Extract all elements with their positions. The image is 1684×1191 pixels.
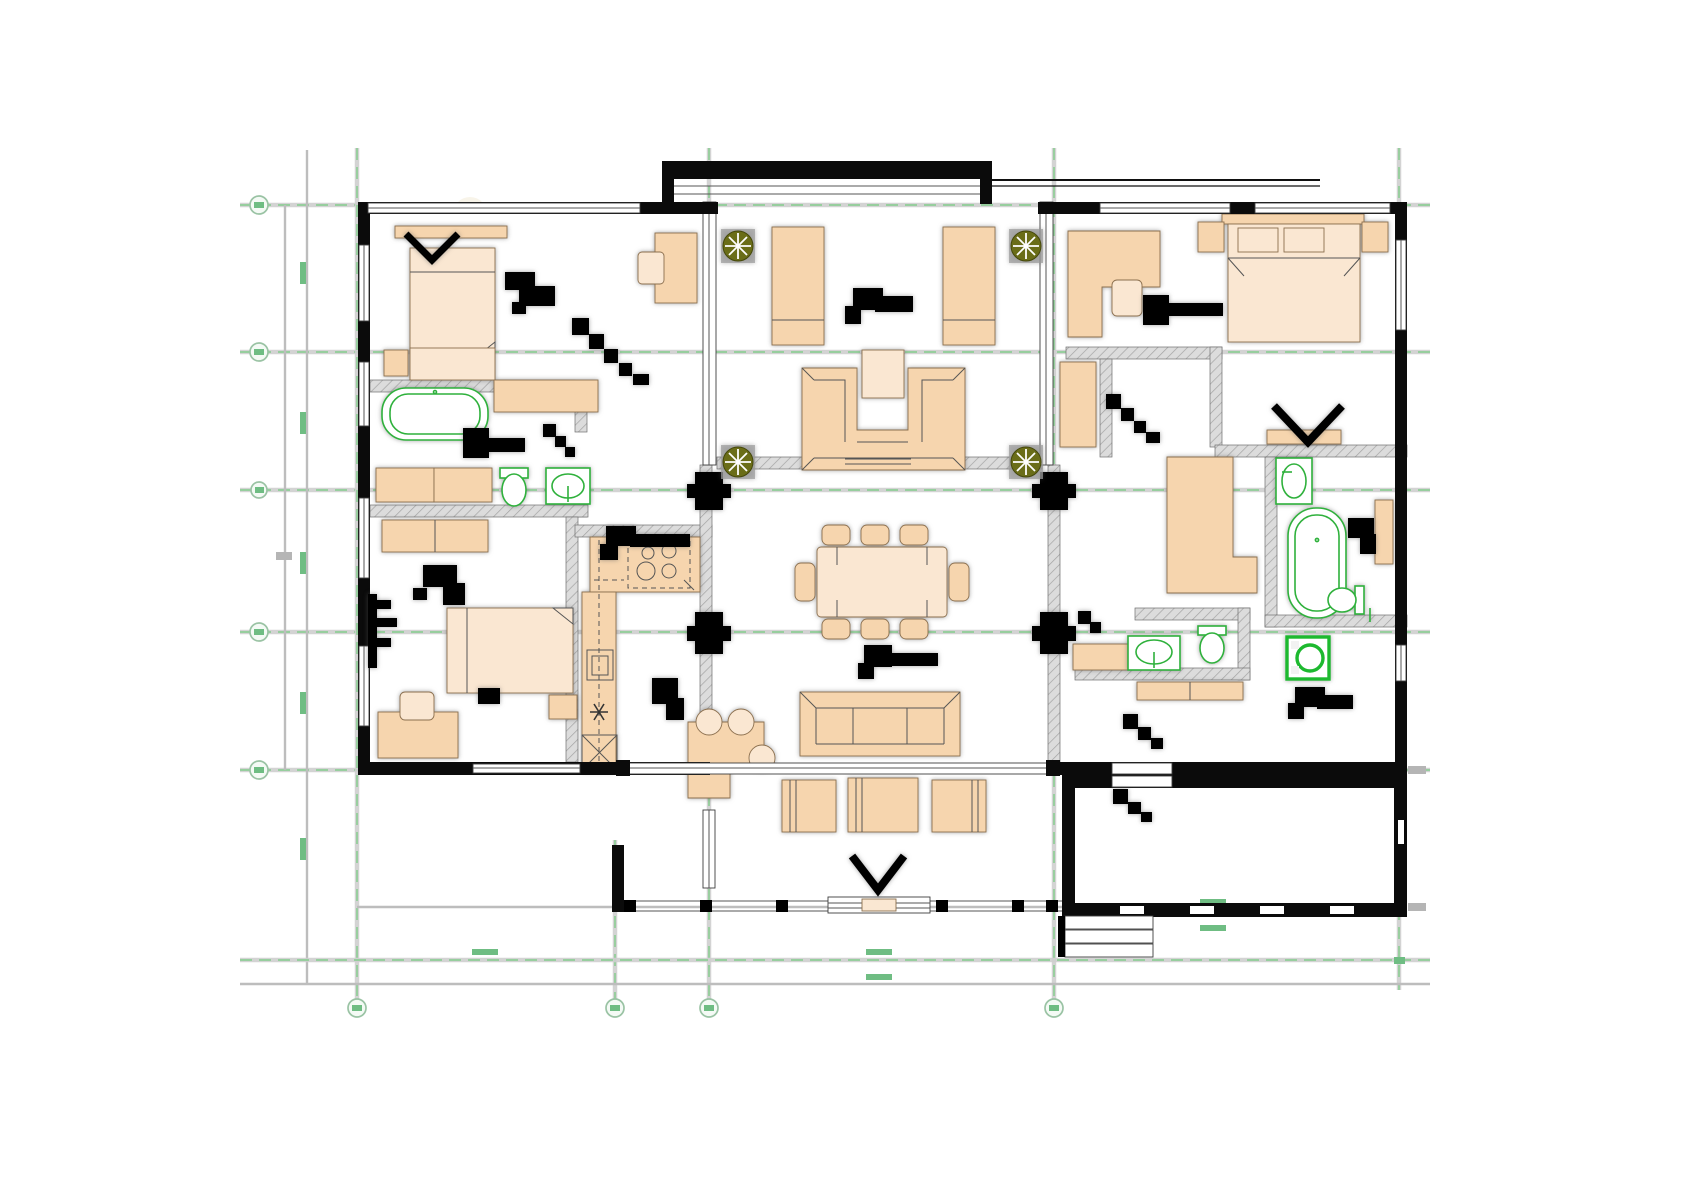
washbasin-wc bbox=[1128, 636, 1180, 670]
nightstand bbox=[384, 350, 408, 376]
cabinet bbox=[376, 468, 434, 502]
toilet-wc bbox=[1198, 626, 1226, 663]
desk-chair bbox=[638, 252, 664, 284]
washbasin-1 bbox=[546, 468, 590, 504]
window-wall bbox=[701, 202, 718, 465]
chair bbox=[861, 619, 889, 639]
window bbox=[1100, 203, 1230, 213]
headboard bbox=[1222, 214, 1364, 224]
window-wall bbox=[703, 810, 715, 888]
window bbox=[368, 203, 640, 213]
desk-chair bbox=[400, 692, 434, 720]
room-wc: wc bbox=[1073, 644, 1129, 670]
wardrobe bbox=[1375, 500, 1393, 564]
pillow bbox=[1284, 228, 1324, 252]
window bbox=[359, 646, 369, 726]
bed-double bbox=[447, 608, 573, 693]
coffee-table bbox=[862, 350, 904, 398]
porch-edge bbox=[662, 161, 992, 179]
plant bbox=[721, 229, 755, 263]
daybed bbox=[772, 227, 824, 345]
terrace-step bbox=[862, 899, 896, 911]
room-hallway-right: hallway right bbox=[1137, 682, 1243, 700]
window bbox=[359, 245, 369, 321]
floor-plan-drawing: Furnished architectural floor plan bbox=[0, 0, 1684, 1191]
foot-bench bbox=[410, 348, 495, 380]
washing-machine bbox=[1287, 637, 1329, 679]
armchair bbox=[848, 778, 918, 832]
desk-chair bbox=[1112, 280, 1142, 316]
room-terrace: terrace bbox=[782, 778, 986, 832]
counter-left-run bbox=[582, 592, 616, 772]
nightstand bbox=[1362, 222, 1388, 252]
window bbox=[1396, 240, 1406, 330]
plant bbox=[1009, 445, 1043, 479]
light-symbol bbox=[478, 688, 500, 704]
pillow bbox=[1238, 228, 1278, 252]
counter bbox=[1073, 644, 1129, 670]
window bbox=[1396, 645, 1406, 681]
nightstand bbox=[549, 695, 577, 719]
vanity-counter bbox=[494, 380, 598, 412]
garage-steps bbox=[1058, 916, 1153, 957]
floor-plan-page: Furnished architectural floor plan bbox=[0, 0, 1684, 1191]
chair bbox=[861, 525, 889, 545]
nightstand bbox=[1198, 222, 1224, 252]
dimension-lines-left bbox=[276, 150, 307, 985]
washbasin-2 bbox=[1276, 458, 1312, 504]
window bbox=[359, 498, 369, 578]
chair bbox=[949, 563, 969, 601]
cabinet bbox=[434, 468, 492, 502]
stool bbox=[728, 709, 754, 735]
chair bbox=[900, 619, 928, 639]
window bbox=[473, 764, 580, 773]
room-walk-in-closet: walk-in closet bbox=[1060, 362, 1096, 447]
wardrobe bbox=[1060, 362, 1096, 447]
plant bbox=[721, 445, 755, 479]
chair bbox=[822, 619, 850, 639]
chair bbox=[795, 563, 815, 601]
chair bbox=[900, 525, 928, 545]
sofa bbox=[800, 692, 960, 756]
door-opening bbox=[1112, 763, 1172, 774]
window bbox=[1255, 203, 1390, 213]
window bbox=[359, 362, 369, 426]
toilet-1 bbox=[500, 468, 528, 506]
plant bbox=[1009, 229, 1043, 263]
daybed bbox=[943, 227, 995, 345]
stool bbox=[696, 709, 722, 735]
chair bbox=[822, 525, 850, 545]
